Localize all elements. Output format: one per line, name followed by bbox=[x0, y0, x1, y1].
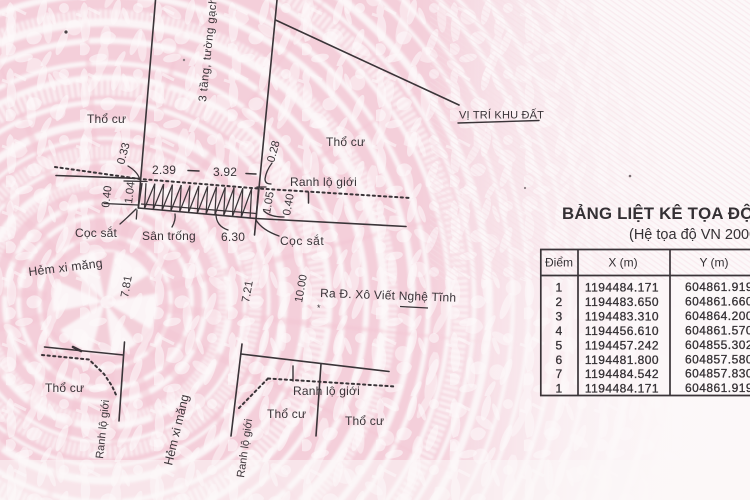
svg-text:604861.919: 604861.919 bbox=[685, 381, 750, 395]
svg-text:604861.919: 604861.919 bbox=[685, 280, 750, 294]
svg-text:1: 1 bbox=[555, 382, 562, 396]
svg-text:Y (m): Y (m) bbox=[699, 256, 728, 270]
svg-text:604857.580: 604857.580 bbox=[685, 352, 750, 366]
svg-text:1194484.171: 1194484.171 bbox=[585, 281, 659, 295]
svg-text:Điểm: Điểm bbox=[545, 256, 573, 270]
svg-text:604855.302: 604855.302 bbox=[685, 338, 750, 352]
svg-text:1194483.310: 1194483.310 bbox=[585, 309, 659, 323]
svg-text:604861.660: 604861.660 bbox=[685, 295, 750, 309]
svg-text:7: 7 bbox=[555, 367, 562, 381]
svg-text:X (m): X (m) bbox=[608, 256, 637, 270]
svg-text:3: 3 bbox=[555, 309, 562, 323]
svg-text:5: 5 bbox=[555, 338, 562, 352]
svg-text:1194481.800: 1194481.800 bbox=[585, 353, 659, 367]
svg-text:1194484.542: 1194484.542 bbox=[585, 367, 659, 381]
svg-text:1194483.650: 1194483.650 bbox=[585, 295, 659, 309]
svg-text:6: 6 bbox=[555, 353, 562, 367]
svg-text:1194456.610: 1194456.610 bbox=[585, 324, 659, 338]
svg-text:604857.830: 604857.830 bbox=[685, 367, 750, 381]
svg-text:604861.570: 604861.570 bbox=[685, 323, 750, 337]
svg-text:1194484.171: 1194484.171 bbox=[585, 382, 659, 396]
svg-text:4: 4 bbox=[555, 324, 562, 338]
svg-text:2: 2 bbox=[555, 295, 562, 309]
svg-text:1194457.242: 1194457.242 bbox=[585, 338, 659, 352]
svg-text:604864.200: 604864.200 bbox=[685, 309, 750, 323]
svg-text:1: 1 bbox=[555, 281, 562, 295]
